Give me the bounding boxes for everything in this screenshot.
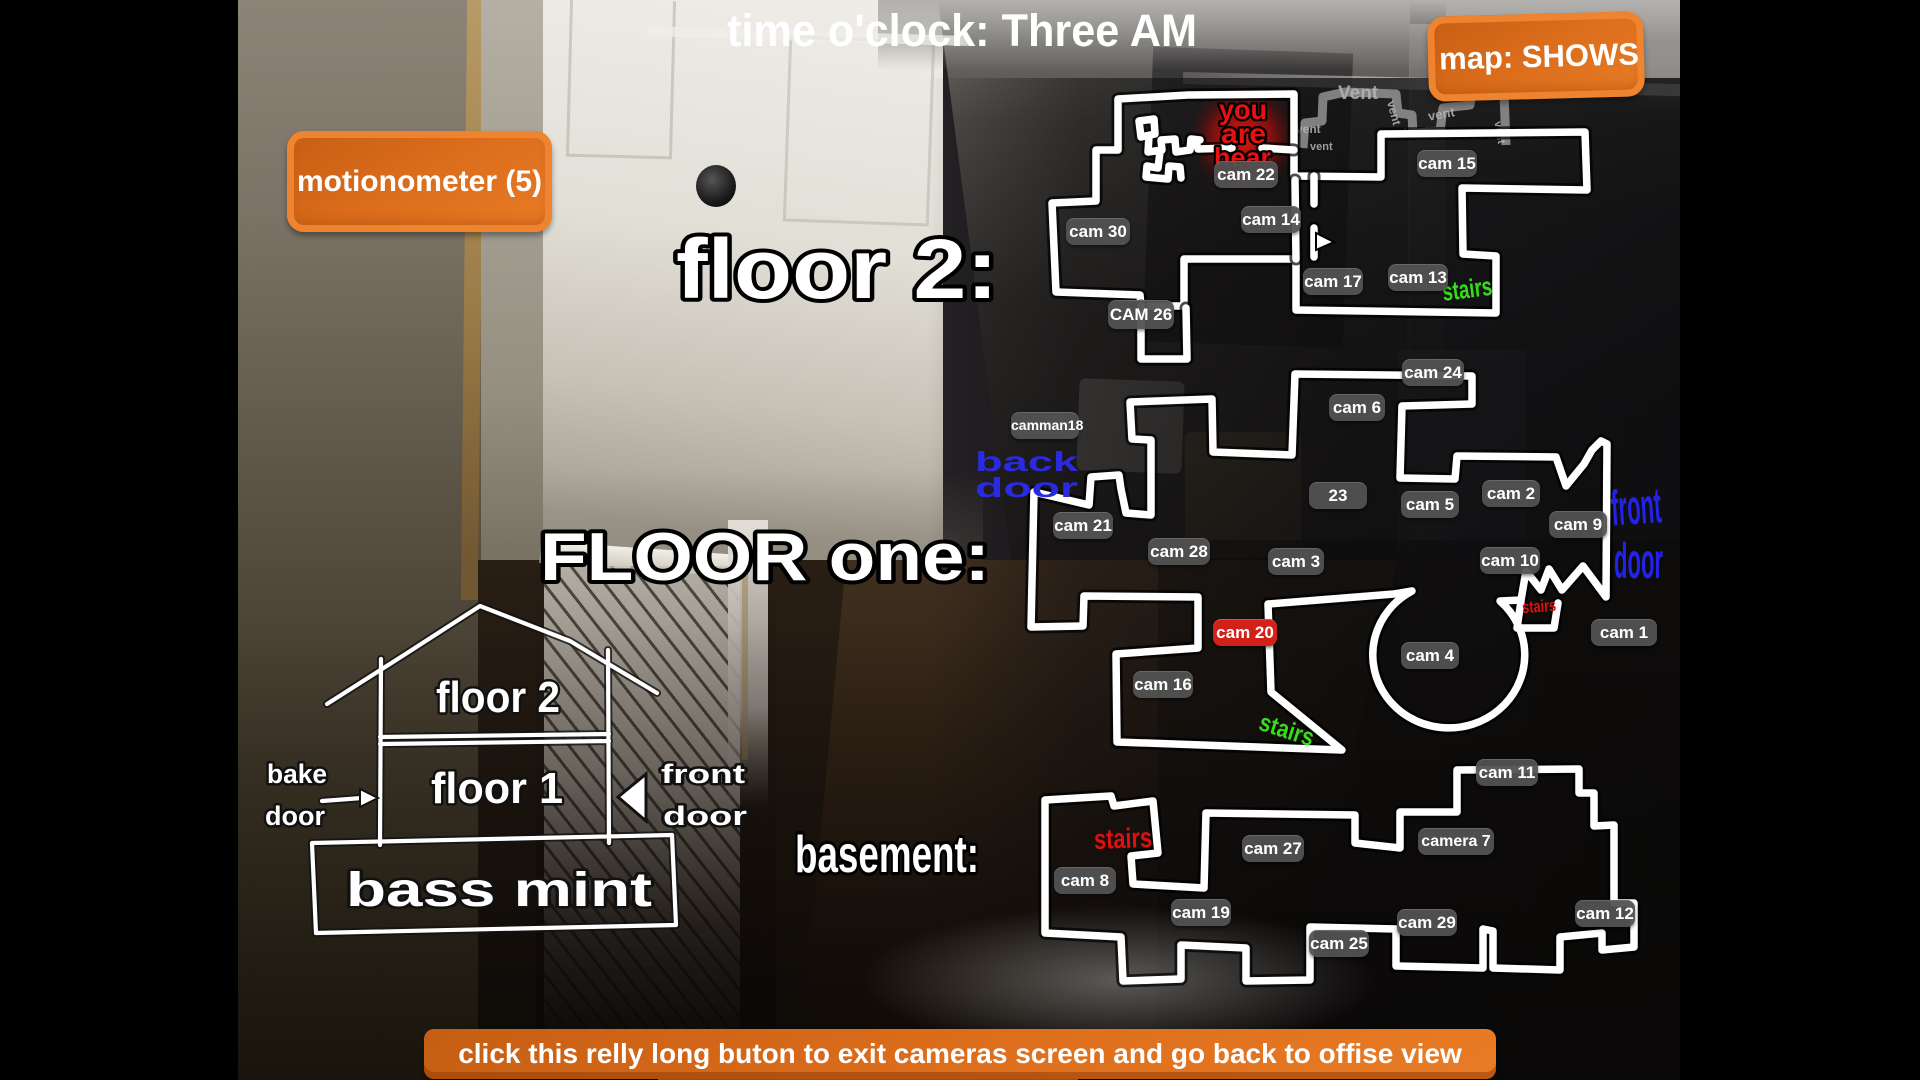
svg-text:FLOOR one:: FLOOR one: — [540, 519, 990, 595]
svg-text:floor 1: floor 1 — [431, 764, 563, 813]
svg-text:floor 2: floor 2 — [436, 673, 560, 722]
svg-text:floor 2:: floor 2: — [676, 222, 998, 316]
svg-text:vent: vent — [1310, 141, 1333, 153]
svg-text:front: front — [1609, 477, 1663, 536]
svg-text:stairs: stairs — [1440, 271, 1493, 307]
svg-text:vent: vent — [1427, 104, 1457, 124]
svg-text:stairs: stairs — [1093, 822, 1152, 855]
svg-text:door: door — [265, 801, 325, 831]
svg-text:door: door — [663, 801, 748, 831]
svg-text:time o'clock: Three AM: time o'clock: Three AM — [727, 5, 1197, 56]
svg-text:Vent: Vent — [1338, 83, 1379, 104]
svg-text:stairs: stairs — [1521, 596, 1556, 617]
svg-text:bake: bake — [267, 759, 327, 789]
svg-text:basement:: basement: — [795, 826, 979, 884]
svg-text:bass mint: bass mint — [346, 864, 652, 917]
svg-text:door: door — [1614, 533, 1663, 589]
svg-text:front: front — [661, 759, 745, 789]
svg-text:door: door — [975, 472, 1078, 503]
